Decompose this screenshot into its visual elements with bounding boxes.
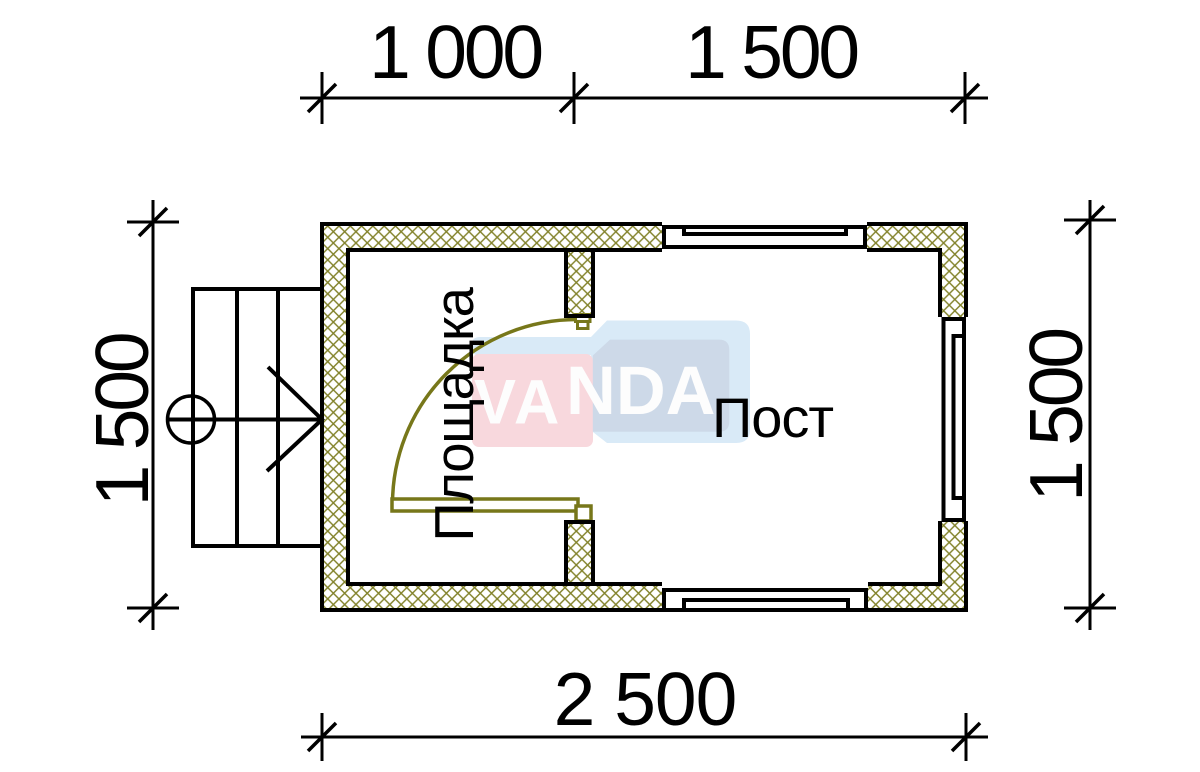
svg-text:1 500: 1 500 (685, 10, 857, 94)
svg-text:Пост: Пост (712, 386, 833, 449)
svg-text:1 500: 1 500 (80, 334, 164, 506)
svg-text:2 500: 2 500 (554, 657, 737, 741)
svg-text:Площадка: Площадка (424, 286, 485, 541)
svg-text:NDA: NDA (566, 352, 716, 429)
svg-text:VA: VA (474, 368, 562, 438)
svg-text:1 500: 1 500 (1014, 330, 1098, 502)
svg-text:1 000: 1 000 (369, 10, 541, 94)
